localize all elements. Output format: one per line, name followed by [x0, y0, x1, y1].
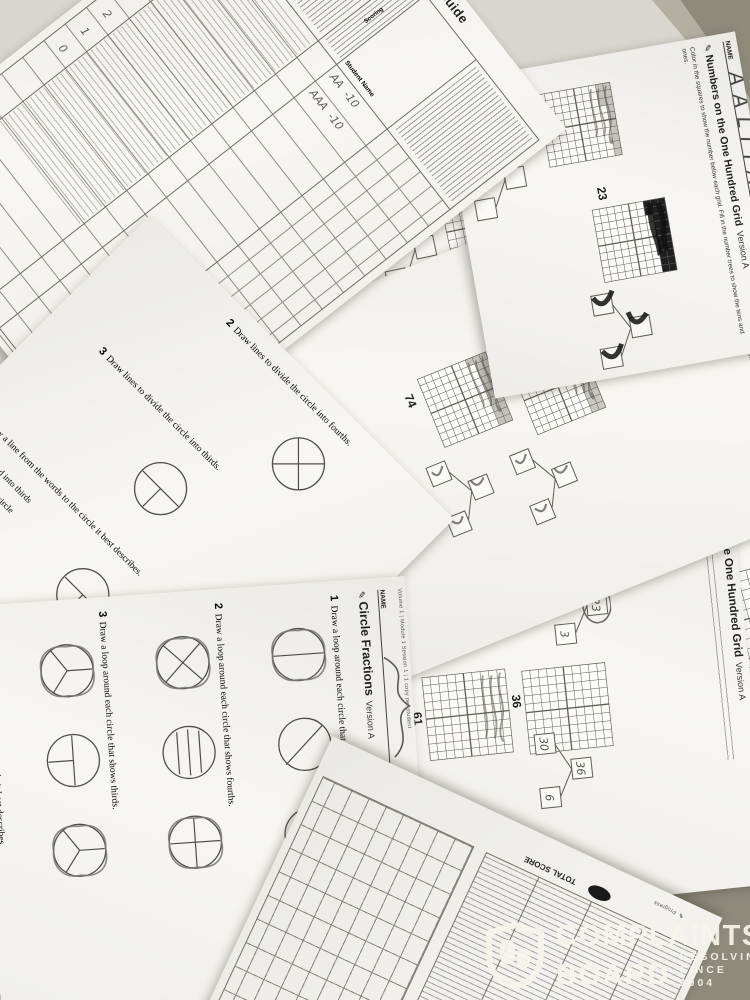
- item-number: 3: [96, 611, 108, 618]
- number-tree: [498, 427, 595, 537]
- grid-number-label: 36: [509, 694, 524, 709]
- grid-number-label: 23: [594, 186, 610, 202]
- fraction-circle-row: [113, 445, 211, 543]
- svg-text:30: 30: [536, 736, 550, 751]
- footer-text: ✎Progress: [652, 899, 685, 919]
- watermark-line2: BOARD: [556, 961, 670, 990]
- svg-text:6: 6: [542, 794, 556, 802]
- sheet-version: Version A: [734, 662, 748, 701]
- watermark-line1: COMPLAINTS: [556, 922, 750, 951]
- item-text: Draw a line from the words to the circle…: [0, 630, 6, 848]
- svg-text:36: 36: [573, 761, 587, 776]
- item-number: 1: [327, 595, 339, 602]
- pencil-icon: ✎: [355, 591, 366, 599]
- watermark-tagline: RESOLVINGSINCE 2004: [680, 951, 750, 990]
- hundred-grid: [416, 669, 513, 762]
- sheet-version: Version A: [735, 230, 750, 269]
- number-tree-marked: [581, 278, 663, 380]
- complaintsboard-watermark: COMPLAINTS BOARD RESOLVINGSINCE 2004: [484, 922, 750, 990]
- number-tree: 36306: [524, 721, 600, 819]
- hundred-grid: [587, 197, 678, 284]
- svg-text:3: 3: [557, 630, 571, 638]
- sheet-version: Version A: [364, 700, 377, 739]
- pencil-icon: ✎: [701, 44, 713, 53]
- shield-icon: [484, 922, 546, 990]
- photo-of-scattered-worksheets: 17 ✎ Numbers on the One Hundred Grid Ver…: [0, 0, 750, 1000]
- pencil-icon: ✎: [678, 911, 685, 919]
- item-number: 2: [212, 603, 224, 610]
